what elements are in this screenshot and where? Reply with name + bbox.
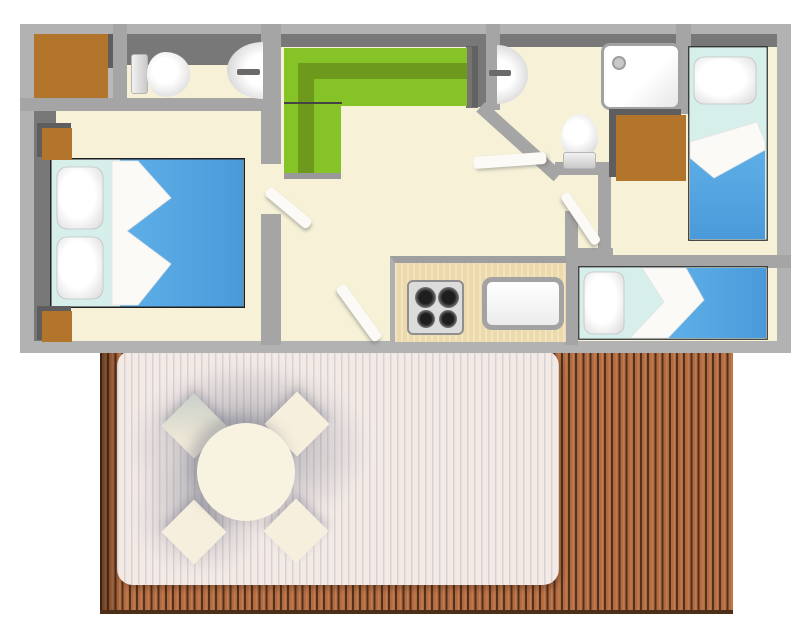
shower-drain <box>612 56 626 70</box>
wardrobe-2 <box>616 115 686 181</box>
floor-plan <box>0 0 800 632</box>
wardrobe-main <box>31 33 108 98</box>
double-bed <box>50 158 245 308</box>
wall-left <box>20 24 34 353</box>
sofa-cushion-line-side <box>298 63 314 175</box>
stove-hob <box>407 280 464 335</box>
wall-right <box>777 24 791 353</box>
wall-bedroom-living-upper <box>261 24 281 164</box>
pillow <box>584 272 624 334</box>
faucet-icon <box>237 69 260 75</box>
burner-icon <box>439 310 457 328</box>
burner-icon <box>438 287 459 308</box>
single-bed-top <box>688 46 768 241</box>
round-table <box>197 423 295 521</box>
toilet-2-bowl <box>561 114 598 157</box>
pillow <box>57 237 103 299</box>
sofa-shadow <box>466 46 478 108</box>
burner-icon <box>415 287 436 308</box>
pillow <box>57 167 103 229</box>
wall-bottom <box>20 341 791 353</box>
wall-bedroom-top <box>20 98 274 111</box>
nightstand-bottom <box>42 311 72 342</box>
wall-wc-left <box>113 24 127 100</box>
sofa-bottom-shadow <box>284 173 341 179</box>
sofa-cushion-line-top <box>298 63 467 79</box>
faucet-icon-2 <box>489 70 511 76</box>
wall-bedroom2-left <box>565 211 578 345</box>
burner-icon <box>417 310 435 328</box>
sofa-seat-edge <box>284 102 342 104</box>
kitchen-sink <box>482 277 564 330</box>
toilet-2-tank <box>563 152 596 169</box>
toilet-tank <box>131 54 148 94</box>
shower-tray <box>601 43 681 110</box>
nightstand-top <box>42 128 72 160</box>
single-bed-bottom <box>578 266 768 340</box>
wall-bedroom-living-lower <box>261 214 281 345</box>
pillow <box>694 57 756 104</box>
top-wall-accent <box>281 33 777 47</box>
